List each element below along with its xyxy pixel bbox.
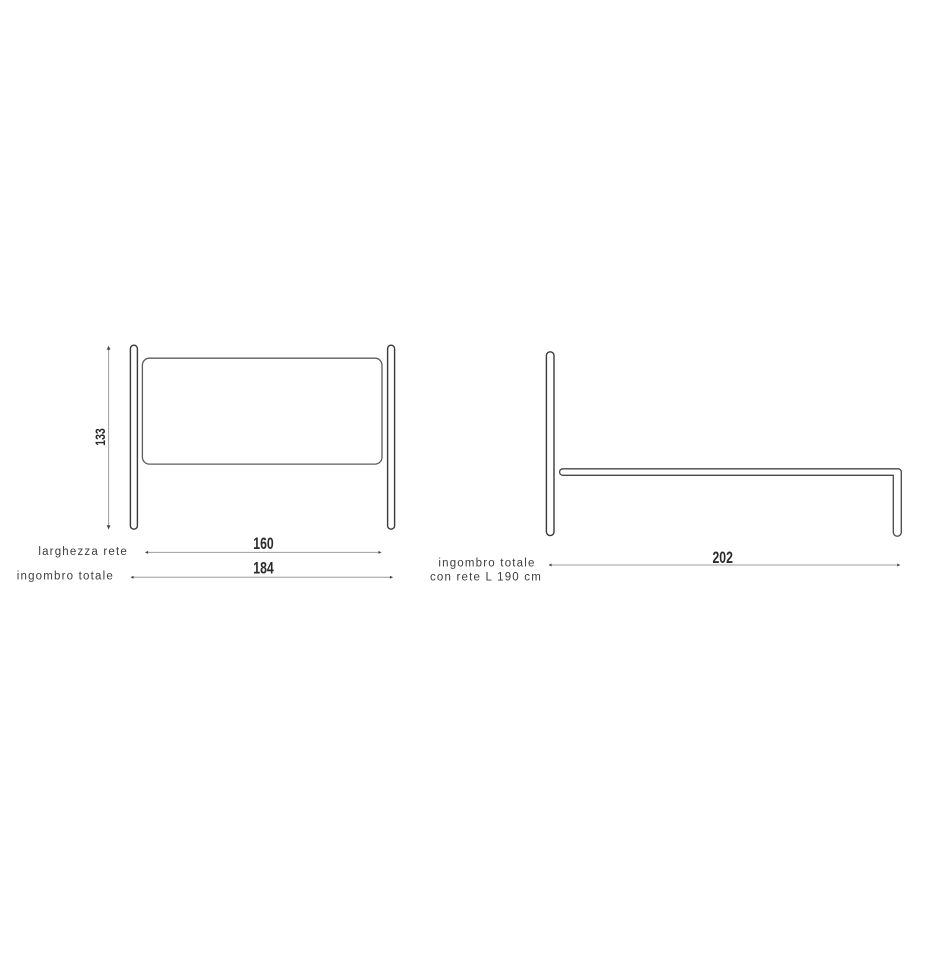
svg-text:133: 133: [93, 428, 109, 446]
svg-text:184: 184: [253, 560, 274, 578]
svg-text:ingombro totale: ingombro totale: [17, 571, 114, 583]
svg-text:con rete L 190 cm: con rete L 190 cm: [430, 571, 542, 583]
svg-text:202: 202: [712, 549, 732, 567]
svg-text:ingombro totale: ingombro totale: [438, 558, 535, 570]
svg-text:160: 160: [253, 535, 273, 553]
svg-text:larghezza rete: larghezza rete: [38, 546, 128, 558]
